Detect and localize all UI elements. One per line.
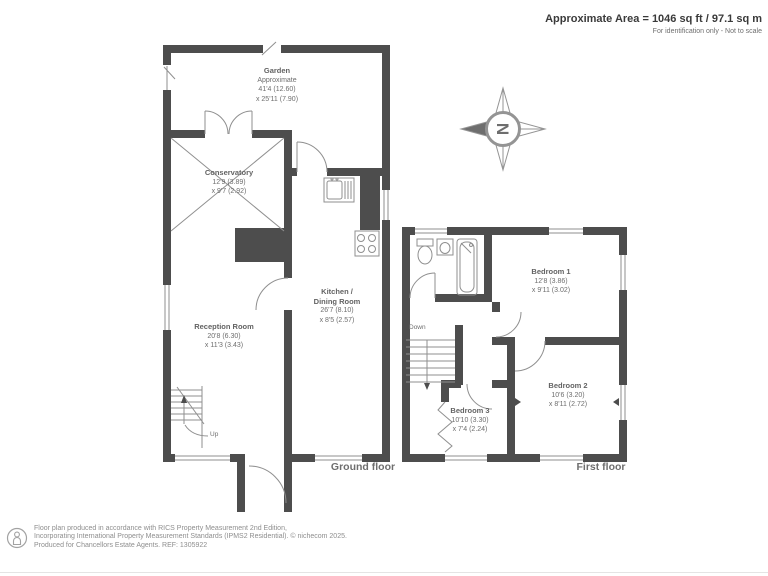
bedroom2-label: Bedroom 2 10'6 (3.20) x 8'11 (2.72)	[548, 381, 587, 410]
identification-disclaimer: For identification only - Not to scale	[653, 28, 762, 35]
bedroom2-side-window	[621, 385, 625, 420]
first-floor-walls	[402, 227, 627, 462]
bathtub-icon	[457, 239, 477, 295]
kitchen-side-window	[384, 190, 388, 220]
floorplan-drawing: N	[0, 0, 768, 576]
toilet-icon	[417, 239, 433, 264]
ground-floor-walls	[163, 45, 390, 512]
reception-window	[165, 285, 169, 330]
bedroom1-side-window	[621, 255, 625, 290]
conservatory-door-arc	[229, 111, 252, 134]
bedroom1-door-arc	[496, 312, 521, 337]
basin-icon	[437, 239, 453, 255]
footer-line3: Produced for Chancellors Estate Agents. …	[34, 542, 347, 550]
bathroom-door-arc	[410, 273, 435, 298]
page-bottom-border	[0, 572, 768, 573]
stairs-down	[406, 340, 455, 384]
sink-icon	[324, 178, 354, 202]
ground-floor-plan	[163, 42, 390, 512]
reception-door-arc	[256, 278, 288, 310]
ground-floor-lines	[164, 42, 388, 503]
stairs-up-label: Up	[210, 431, 218, 438]
footer-line2: Incorporating International Property Mea…	[34, 533, 347, 541]
first-floor-plan	[402, 227, 627, 462]
wall-nib	[515, 398, 521, 406]
bathroom-window	[415, 229, 447, 233]
compass-rose: N	[461, 88, 545, 170]
footer: Floor plan produced in accordance with R…	[6, 525, 347, 551]
wall-nib	[613, 398, 619, 406]
kitchen-bottom-window	[315, 456, 362, 460]
approximate-area-text: Approximate Area = 1046 sq ft / 97.1 sq …	[545, 13, 762, 25]
ground-floor-label: Ground floor	[331, 461, 395, 473]
kitchen-back-door-arc	[297, 142, 327, 172]
compass-north-letter: N	[494, 123, 513, 135]
bedroom1-label: Bedroom 1 12'8 (3.86) x 9'11 (3.02)	[531, 267, 570, 296]
stairs-up	[171, 386, 208, 448]
bedroom3-label: Bedroom 3 10'10 (3.30) x 7'4 (2.24)	[450, 406, 489, 435]
bedroom2-bottom-window	[540, 456, 583, 460]
stairs-down-arrow	[424, 383, 430, 390]
front-window	[175, 456, 230, 460]
garden-gate-tick	[262, 42, 276, 55]
bedroom3-window	[445, 456, 487, 460]
hob-icon	[355, 231, 379, 256]
conservatory-door-arc	[205, 111, 228, 134]
bedroom1-top-window	[549, 229, 583, 233]
conservatory-label: Conservatory 12'9 (3.89) x 9'7 (2.92)	[205, 168, 253, 197]
floorplan-page: N Approximate Area = 1046 sq ft / 97.1 s…	[0, 0, 768, 576]
reception-room-label: Reception Room 20'8 (6.30) x 11'3 (3.43)	[194, 322, 254, 351]
first-floor-label: First floor	[577, 461, 626, 473]
footer-text: Floor plan produced in accordance with R…	[34, 525, 347, 550]
stairs-down-label: Down	[409, 324, 426, 331]
garden-label: Garden Approximate 41'4 (12.60) x 25'11 …	[256, 66, 298, 104]
kitchen-dining-label: Kitchen / Dining Room 26'7 (8.10) x 8'5 …	[314, 287, 361, 325]
nichecom-logo-icon	[6, 525, 28, 551]
garden-gate-tick-left	[164, 67, 175, 79]
front-door-arc	[249, 466, 286, 503]
bedroom2-door-arc	[515, 341, 545, 371]
